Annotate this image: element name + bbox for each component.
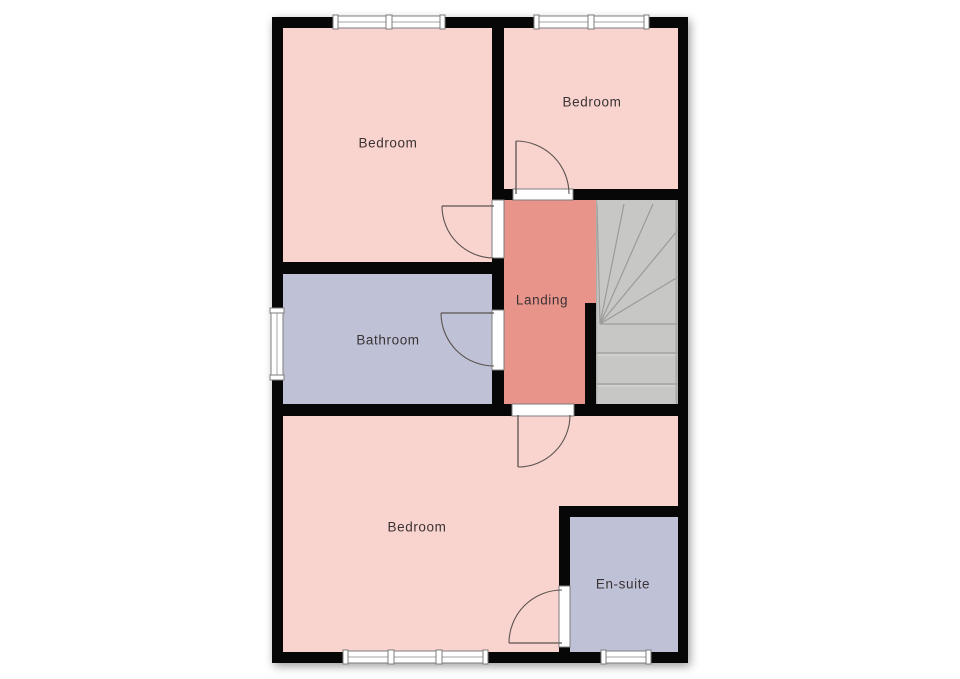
room-label-bedroom-front: Bedroom	[359, 136, 418, 151]
room-label-bathroom: Bathroom	[356, 333, 419, 348]
floorplan-page: Bedroom Bedroom Landing Bathroom Bedroom…	[0, 0, 960, 679]
wall-bedroom-front-bathroom	[272, 262, 504, 274]
room-label-bedroom-back: Bedroom	[563, 95, 622, 110]
wall-ensuite-top	[559, 506, 688, 517]
wall-landing-bedroom-main	[272, 404, 688, 416]
wall-landing-stairs-stub	[585, 303, 596, 416]
door-bedroom-back	[513, 189, 573, 200]
floorplan-drawing	[0, 0, 960, 679]
door-bedroom-front	[492, 200, 504, 258]
room-label-landing: Landing	[516, 293, 568, 308]
door-bathroom	[492, 310, 504, 370]
door-bedroom-main	[512, 404, 574, 416]
room-label-bedroom-main: Bedroom	[388, 520, 447, 535]
room-label-ensuite: En-suite	[596, 577, 650, 592]
door-ensuite	[559, 586, 570, 647]
